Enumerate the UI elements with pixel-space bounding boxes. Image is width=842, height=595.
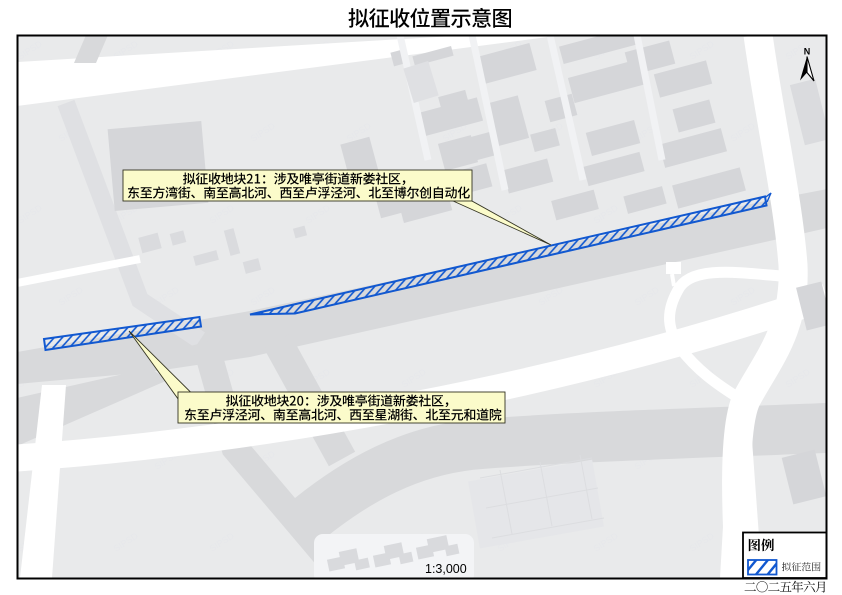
svg-text:1:3,000: 1:3,000 [425, 562, 467, 576]
svg-text:N: N [804, 47, 811, 57]
